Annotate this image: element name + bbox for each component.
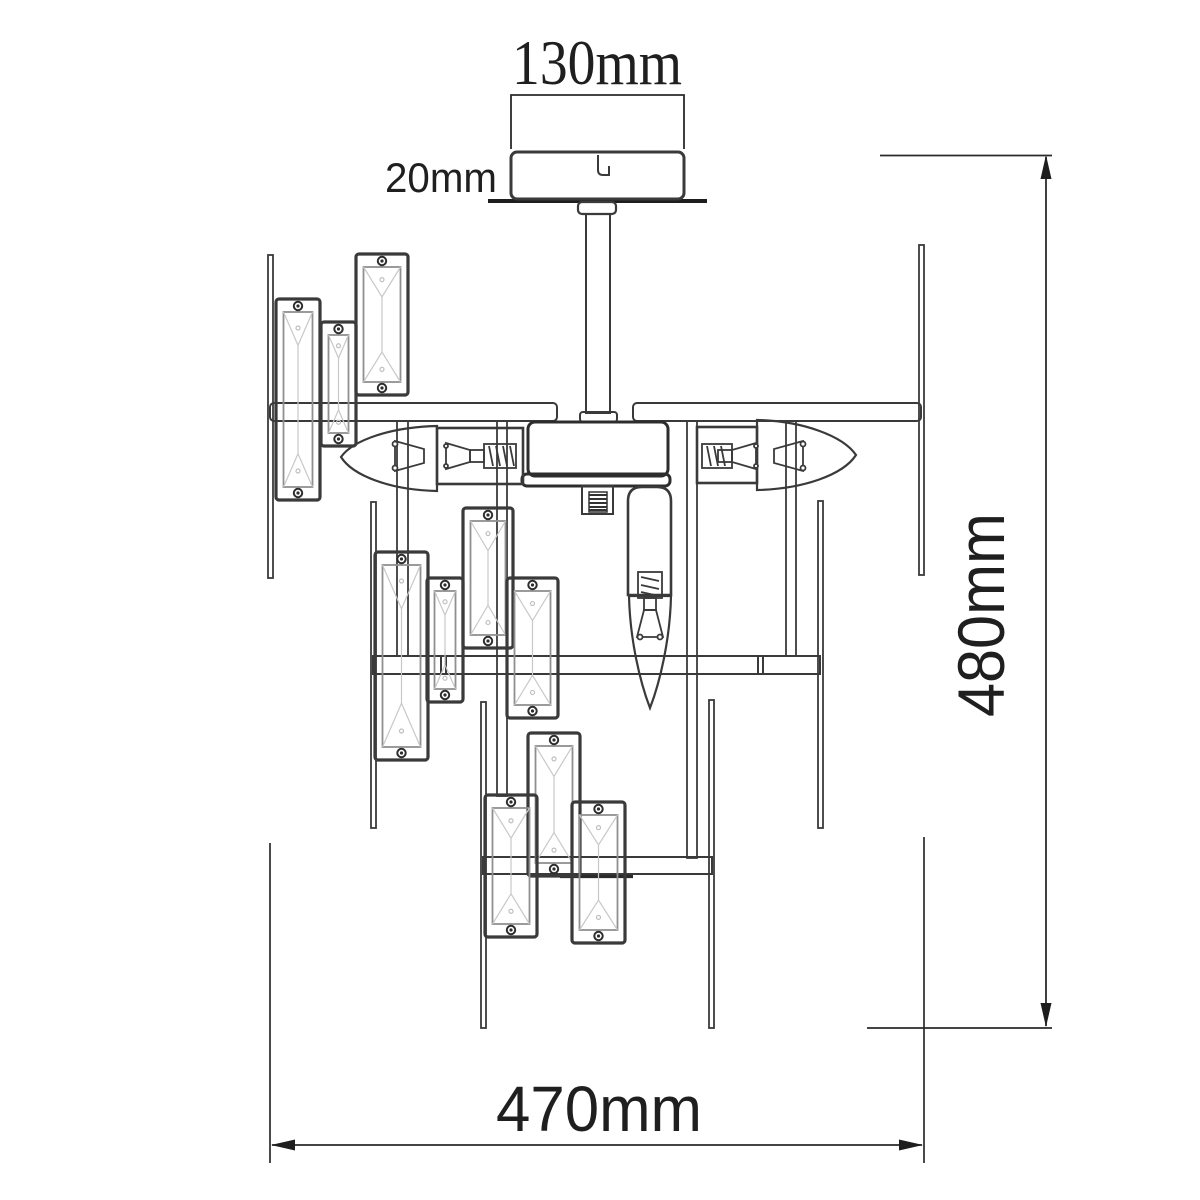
candle-bulb-right: [697, 420, 856, 490]
screw-icon: [507, 798, 515, 806]
crystal-panel: [507, 578, 558, 718]
hanging-rod: [397, 421, 408, 656]
crystal-panel: [276, 299, 320, 500]
canopy-height-label: 20mm: [385, 154, 497, 201]
dimension-bracket: [511, 95, 684, 149]
screw-icon: [484, 637, 492, 645]
canopy-width-dimension: 130mm: [511, 27, 684, 149]
screw-icon: [334, 435, 342, 443]
screw-icon: [484, 511, 492, 519]
middle-arm: [373, 656, 820, 674]
screw-icon: [378, 257, 386, 265]
screw-icon: [378, 384, 386, 392]
drawing-canvas: 130mm 20mm 480mm 470mm: [0, 0, 1200, 1200]
canopy-width-label: 130mm: [512, 27, 682, 98]
screw-icon: [441, 581, 449, 589]
screw-icon: [594, 805, 602, 813]
screw-icon: [397, 555, 405, 563]
crystal-facets: [515, 591, 551, 705]
screw-icon: [550, 736, 558, 744]
flame-bulb: [757, 420, 856, 490]
overall-height-dimension: 480mm: [867, 155, 1052, 1028]
crystal-panel: [321, 322, 356, 446]
lamp-socket: [697, 427, 757, 483]
crystal-facets: [329, 335, 349, 433]
flame-bulb: [629, 596, 671, 708]
screw-icon: [550, 865, 558, 873]
screw-icon: [528, 581, 536, 589]
mounting-stem: [578, 202, 617, 422]
chandelier-dimension-drawing: 130mm 20mm 480mm 470mm: [0, 0, 1200, 1200]
crystal-facets: [471, 521, 506, 635]
screw-icon: [507, 926, 515, 934]
crystal-panel-group: [276, 254, 625, 943]
crystal-panel: [427, 578, 463, 702]
canopy-hook-icon: [598, 155, 609, 175]
threaded-nipple: [582, 486, 613, 514]
crystal-panel: [375, 552, 428, 760]
lamp-holder-icon: [702, 441, 806, 471]
hanging-rod: [786, 421, 796, 656]
crystal-facets: [364, 267, 401, 382]
canopy: [511, 152, 684, 199]
crystal-facets: [580, 815, 618, 930]
crystal-panel: [485, 795, 537, 937]
crystal-facets: [493, 808, 530, 924]
crystal-panel: [356, 254, 408, 395]
screw-icon: [441, 691, 449, 699]
lamp-socket: [437, 428, 523, 484]
screw-icon: [334, 325, 342, 333]
crystal-panel: [572, 802, 625, 943]
screw-icon: [594, 932, 602, 940]
arrow-down-icon: [1041, 1003, 1052, 1027]
screw-icon: [397, 749, 405, 757]
screw-icon: [528, 707, 536, 715]
overall-height-label: 480mm: [944, 513, 1018, 717]
arrow-right-icon: [899, 1140, 923, 1151]
bottom-arm: [483, 857, 712, 877]
hanging-rod: [687, 421, 697, 858]
overall-width-label: 470mm: [496, 1073, 702, 1145]
crystal-facets: [536, 746, 573, 863]
screw-icon: [294, 489, 302, 497]
arrow-up-icon: [1041, 155, 1052, 179]
lamp-holder-icon: [637, 572, 663, 640]
crystal-facets: [284, 312, 313, 487]
arrow-left-icon: [271, 1140, 295, 1151]
overall-width-dimension: 470mm: [270, 837, 924, 1163]
candle-bulb-left: [341, 426, 523, 491]
center-hub: [522, 422, 670, 486]
screw-icon: [294, 302, 302, 310]
